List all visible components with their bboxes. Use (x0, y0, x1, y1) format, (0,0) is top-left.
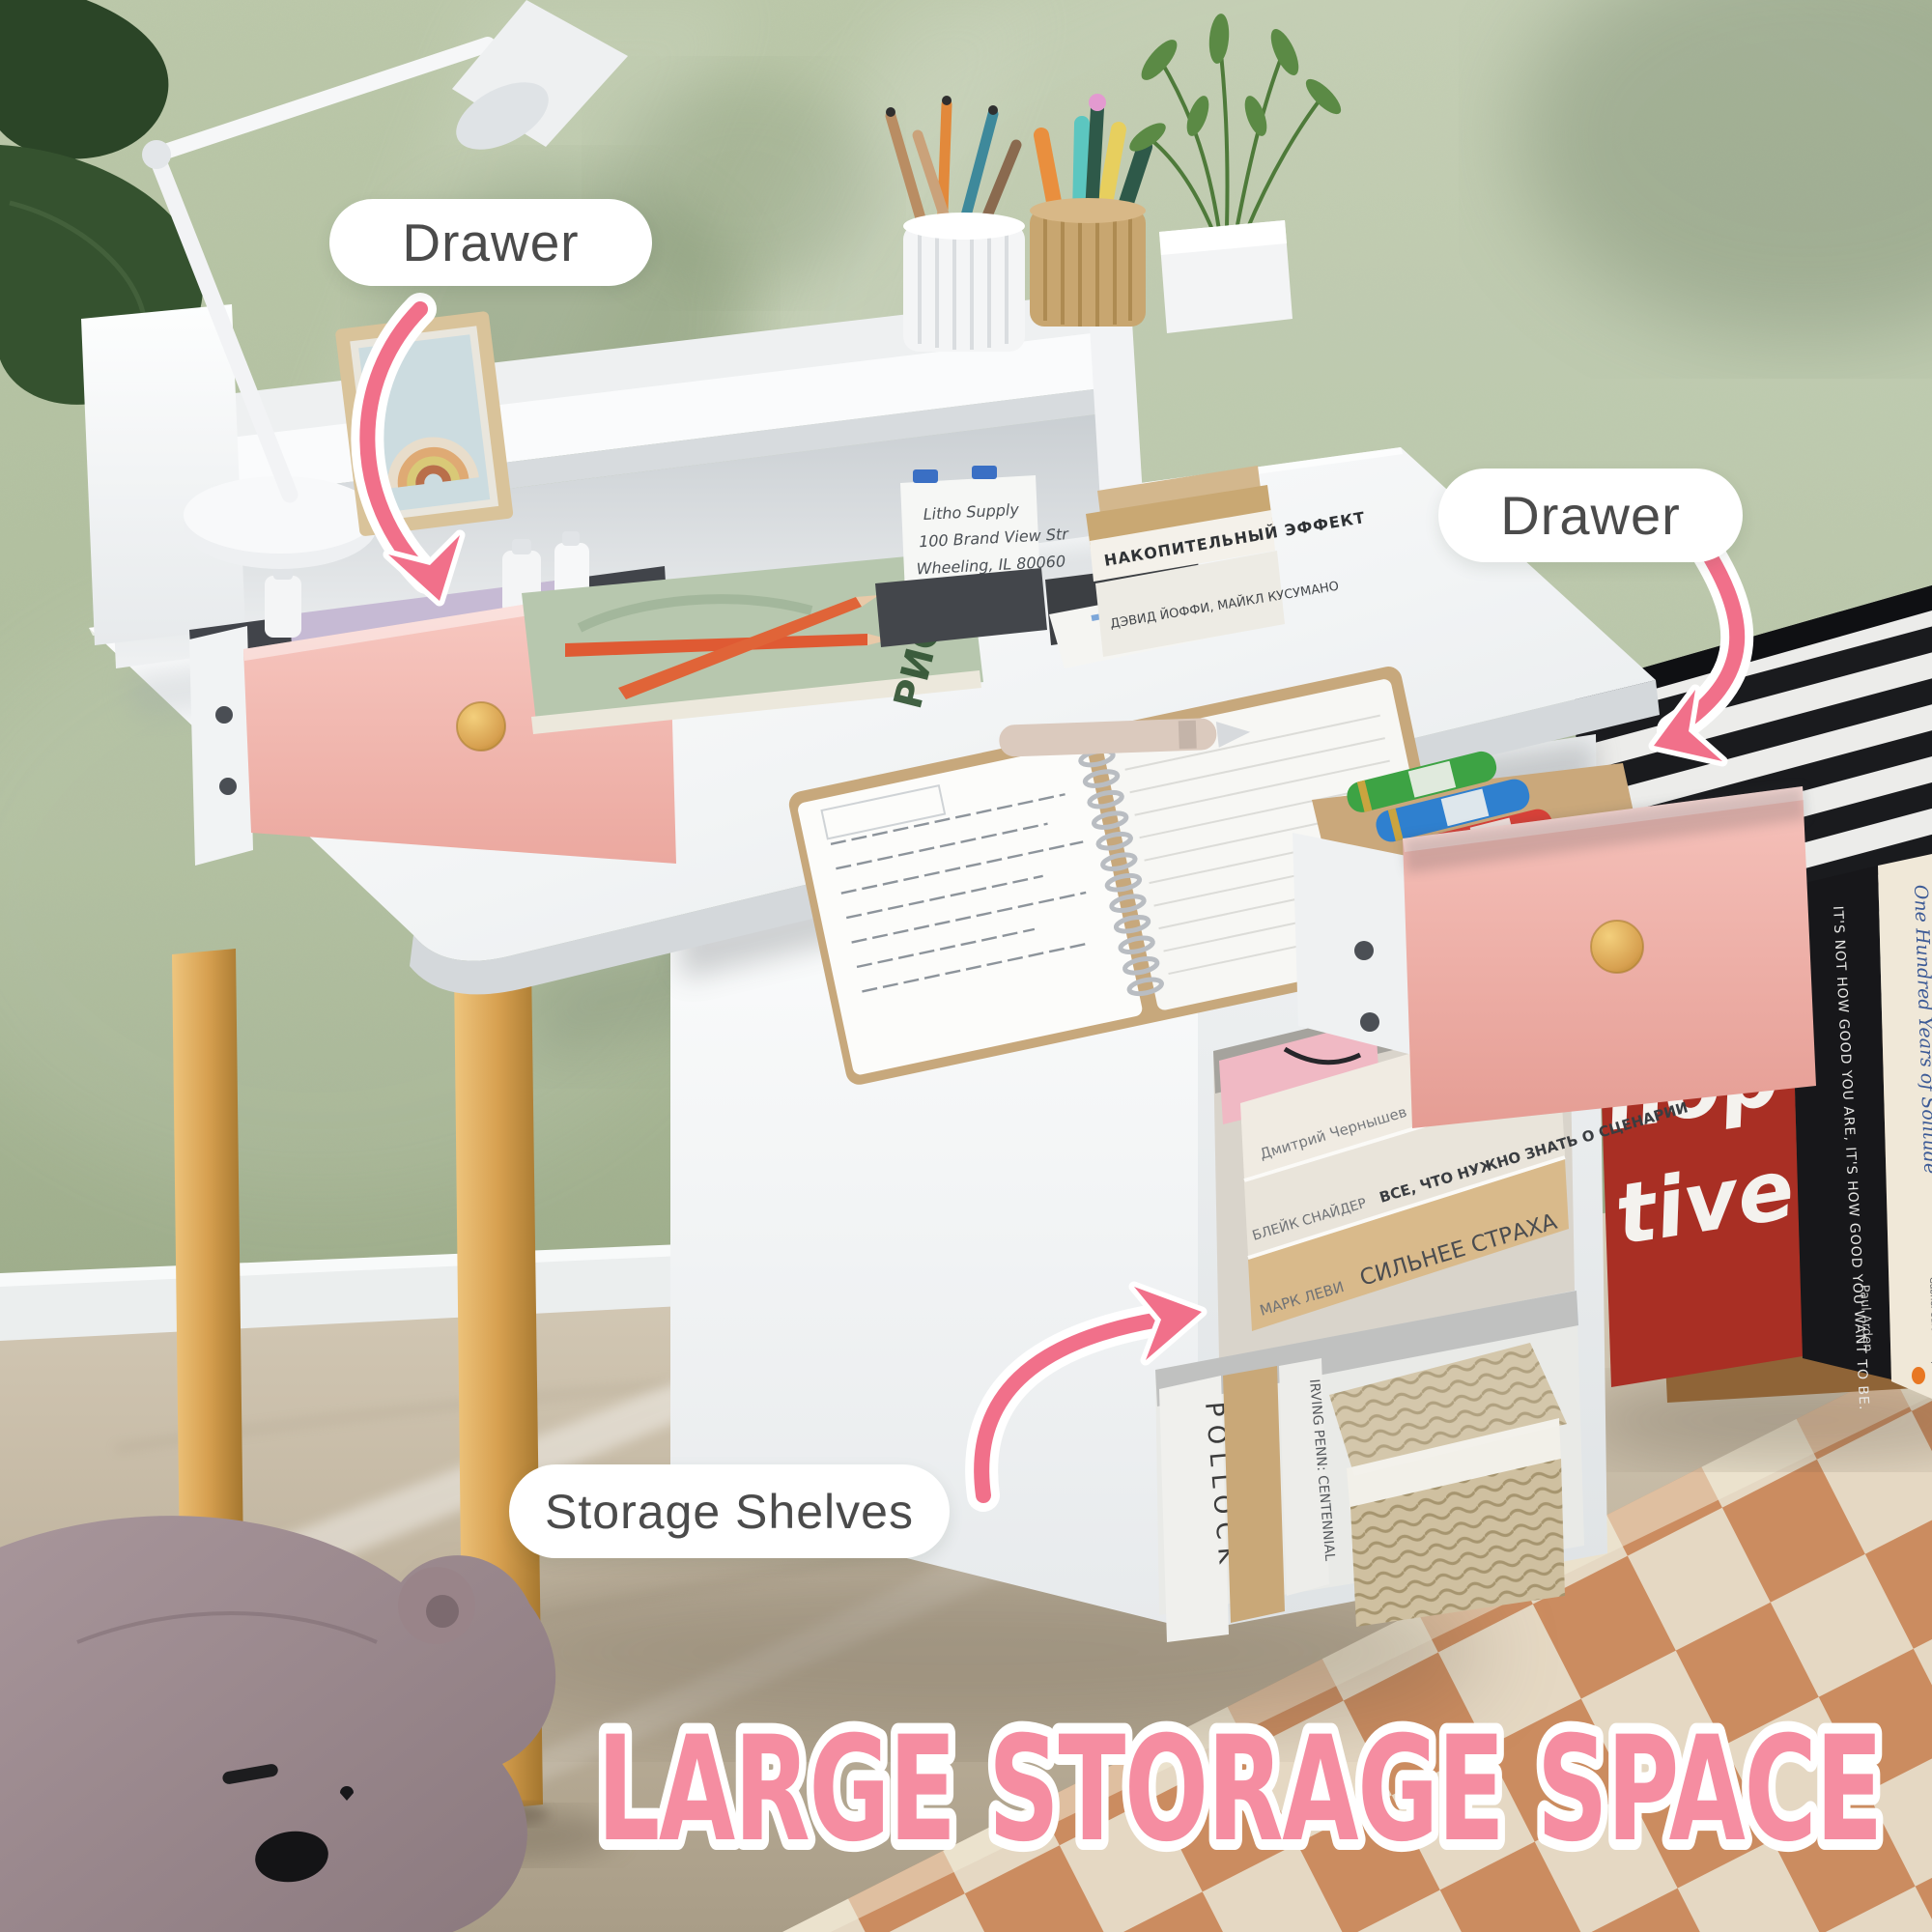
label-storage-shelves: Storage Shelves (509, 1464, 950, 1558)
scene-illustration: NEED hop tive IT'S NOT HOW GOOD YOU ARE,… (0, 0, 1932, 1932)
desk-leg-back (172, 949, 243, 1565)
page-title: LARGE STORAGE SPACE (597, 1706, 1882, 1874)
product-scene: NEED hop tive IT'S NOT HOW GOOD YOU ARE,… (0, 0, 1932, 1932)
label-drawer-left: Drawer (329, 199, 652, 286)
penguin-logo-icon (1912, 1367, 1925, 1384)
hutch-left-panel (81, 304, 245, 645)
label-drawer-right: Drawer (1438, 469, 1743, 562)
drawer-left-box-side (189, 626, 253, 866)
label-drawer-right-text: Drawer (1500, 484, 1680, 547)
bear-pouf (0, 1516, 555, 1932)
drawer-right-box-side (1293, 833, 1412, 1055)
label-storage-shelves-text: Storage Shelves (545, 1484, 914, 1540)
label-drawer-left-text: Drawer (402, 212, 579, 273)
